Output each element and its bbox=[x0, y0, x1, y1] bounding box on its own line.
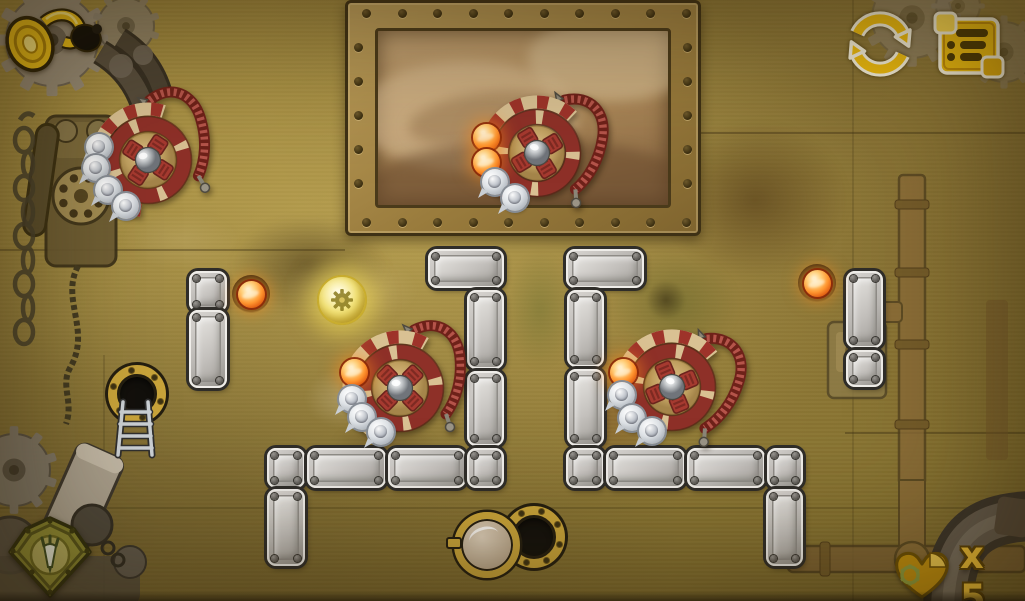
restart-arrows-icon bbox=[842, 6, 918, 82]
fire-ball[interactable] bbox=[238, 281, 265, 308]
rotor-wheel[interactable] bbox=[325, 313, 475, 463]
gear-powerup-orb[interactable] bbox=[317, 275, 367, 325]
game-board: x 5 bbox=[0, 0, 1025, 601]
fire-ball-slot bbox=[473, 124, 500, 151]
menu-list-button[interactable] bbox=[930, 7, 1008, 83]
restart-button[interactable] bbox=[842, 6, 918, 82]
metal-ball-slot bbox=[639, 418, 665, 444]
menu-list-icon bbox=[930, 7, 1008, 83]
horn-icon bbox=[0, 0, 115, 85]
rotor-wheel[interactable] bbox=[73, 85, 223, 235]
fire-ball-slot bbox=[341, 359, 368, 386]
metal-ball-slot bbox=[368, 419, 394, 445]
metal-ball-slot bbox=[113, 193, 139, 219]
rocket-gem-icon bbox=[2, 508, 98, 600]
gear-icon bbox=[328, 286, 356, 314]
rotor-wheel[interactable] bbox=[462, 78, 612, 228]
horn-button[interactable] bbox=[0, 0, 115, 85]
metal-ball-slot bbox=[502, 185, 528, 211]
rotor-wheel[interactable] bbox=[597, 312, 747, 462]
rocket-gem-button[interactable] bbox=[2, 508, 98, 600]
fire-ball[interactable] bbox=[804, 270, 831, 297]
